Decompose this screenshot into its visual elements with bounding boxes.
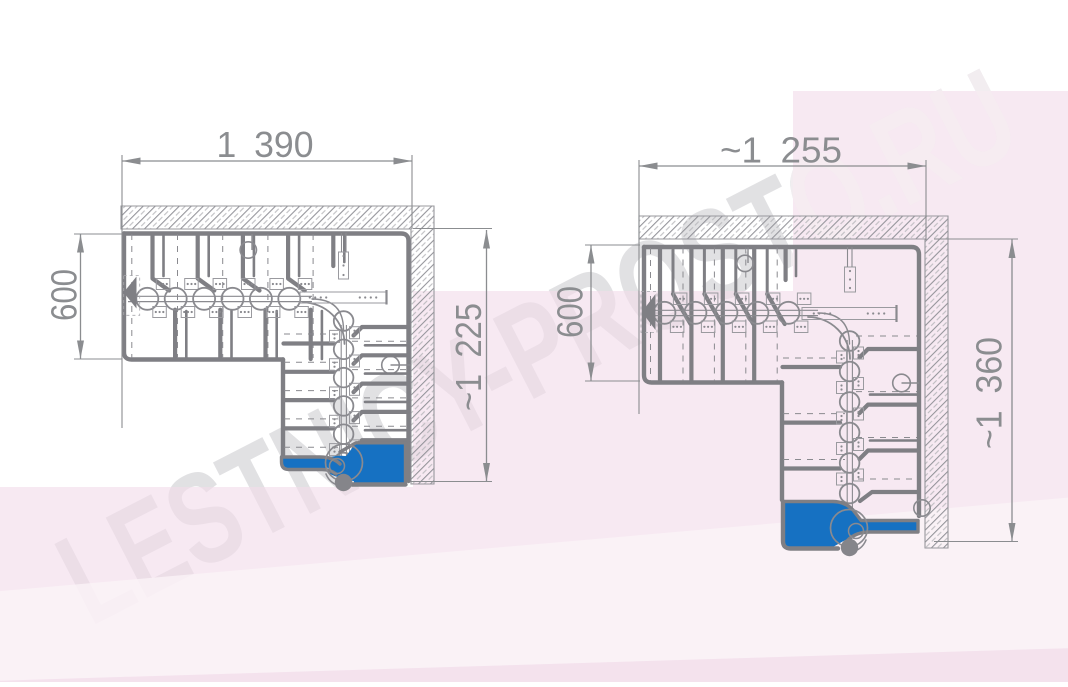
svg-text:~1 360: ~1 360	[969, 337, 1010, 449]
svg-text:~1 225: ~1 225	[448, 303, 489, 411]
svg-text:1 390: 1 390	[217, 124, 314, 165]
svg-text:~1 255: ~1 255	[720, 130, 842, 171]
svg-text:600: 600	[44, 269, 85, 321]
svg-text:600: 600	[550, 286, 591, 338]
